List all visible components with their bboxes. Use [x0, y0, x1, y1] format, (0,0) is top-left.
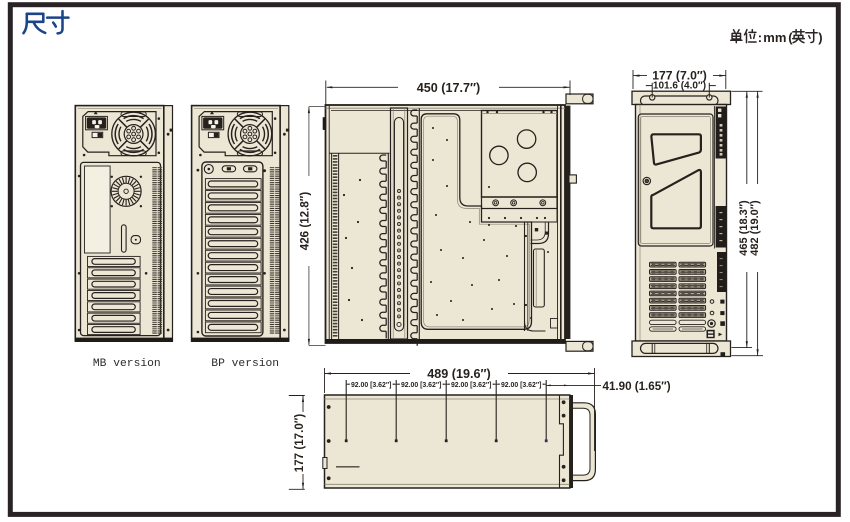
svg-text:489 (19.6″): 489 (19.6″)	[427, 367, 490, 381]
svg-text:482 (19.0″): 482 (19.0″)	[749, 200, 761, 256]
svg-text:): )	[818, 30, 822, 45]
svg-text:450 (17.7″): 450 (17.7″)	[417, 81, 480, 95]
svg-text:101.6 (4.0″): 101.6 (4.0″)	[653, 81, 706, 92]
svg-text:92.00 [3.62″]: 92.00 [3.62″]	[351, 382, 391, 389]
svg-text::: :	[758, 30, 762, 45]
svg-text:mm: mm	[763, 30, 786, 45]
svg-text:426 (12.8″): 426 (12.8″)	[299, 192, 312, 251]
svg-text:92.00 [3.62″]: 92.00 [3.62″]	[401, 382, 441, 389]
svg-text:41.90 (1.65″): 41.90 (1.65″)	[603, 380, 671, 393]
svg-text:92.00 [3.62″]: 92.00 [3.62″]	[501, 382, 541, 389]
svg-text:92.00 [3.62″]: 92.00 [3.62″]	[451, 382, 491, 389]
svg-text:177 (17.0″): 177 (17.0″)	[293, 414, 306, 473]
svg-text:BP version: BP version	[211, 358, 279, 370]
svg-text:MB version: MB version	[93, 358, 161, 370]
